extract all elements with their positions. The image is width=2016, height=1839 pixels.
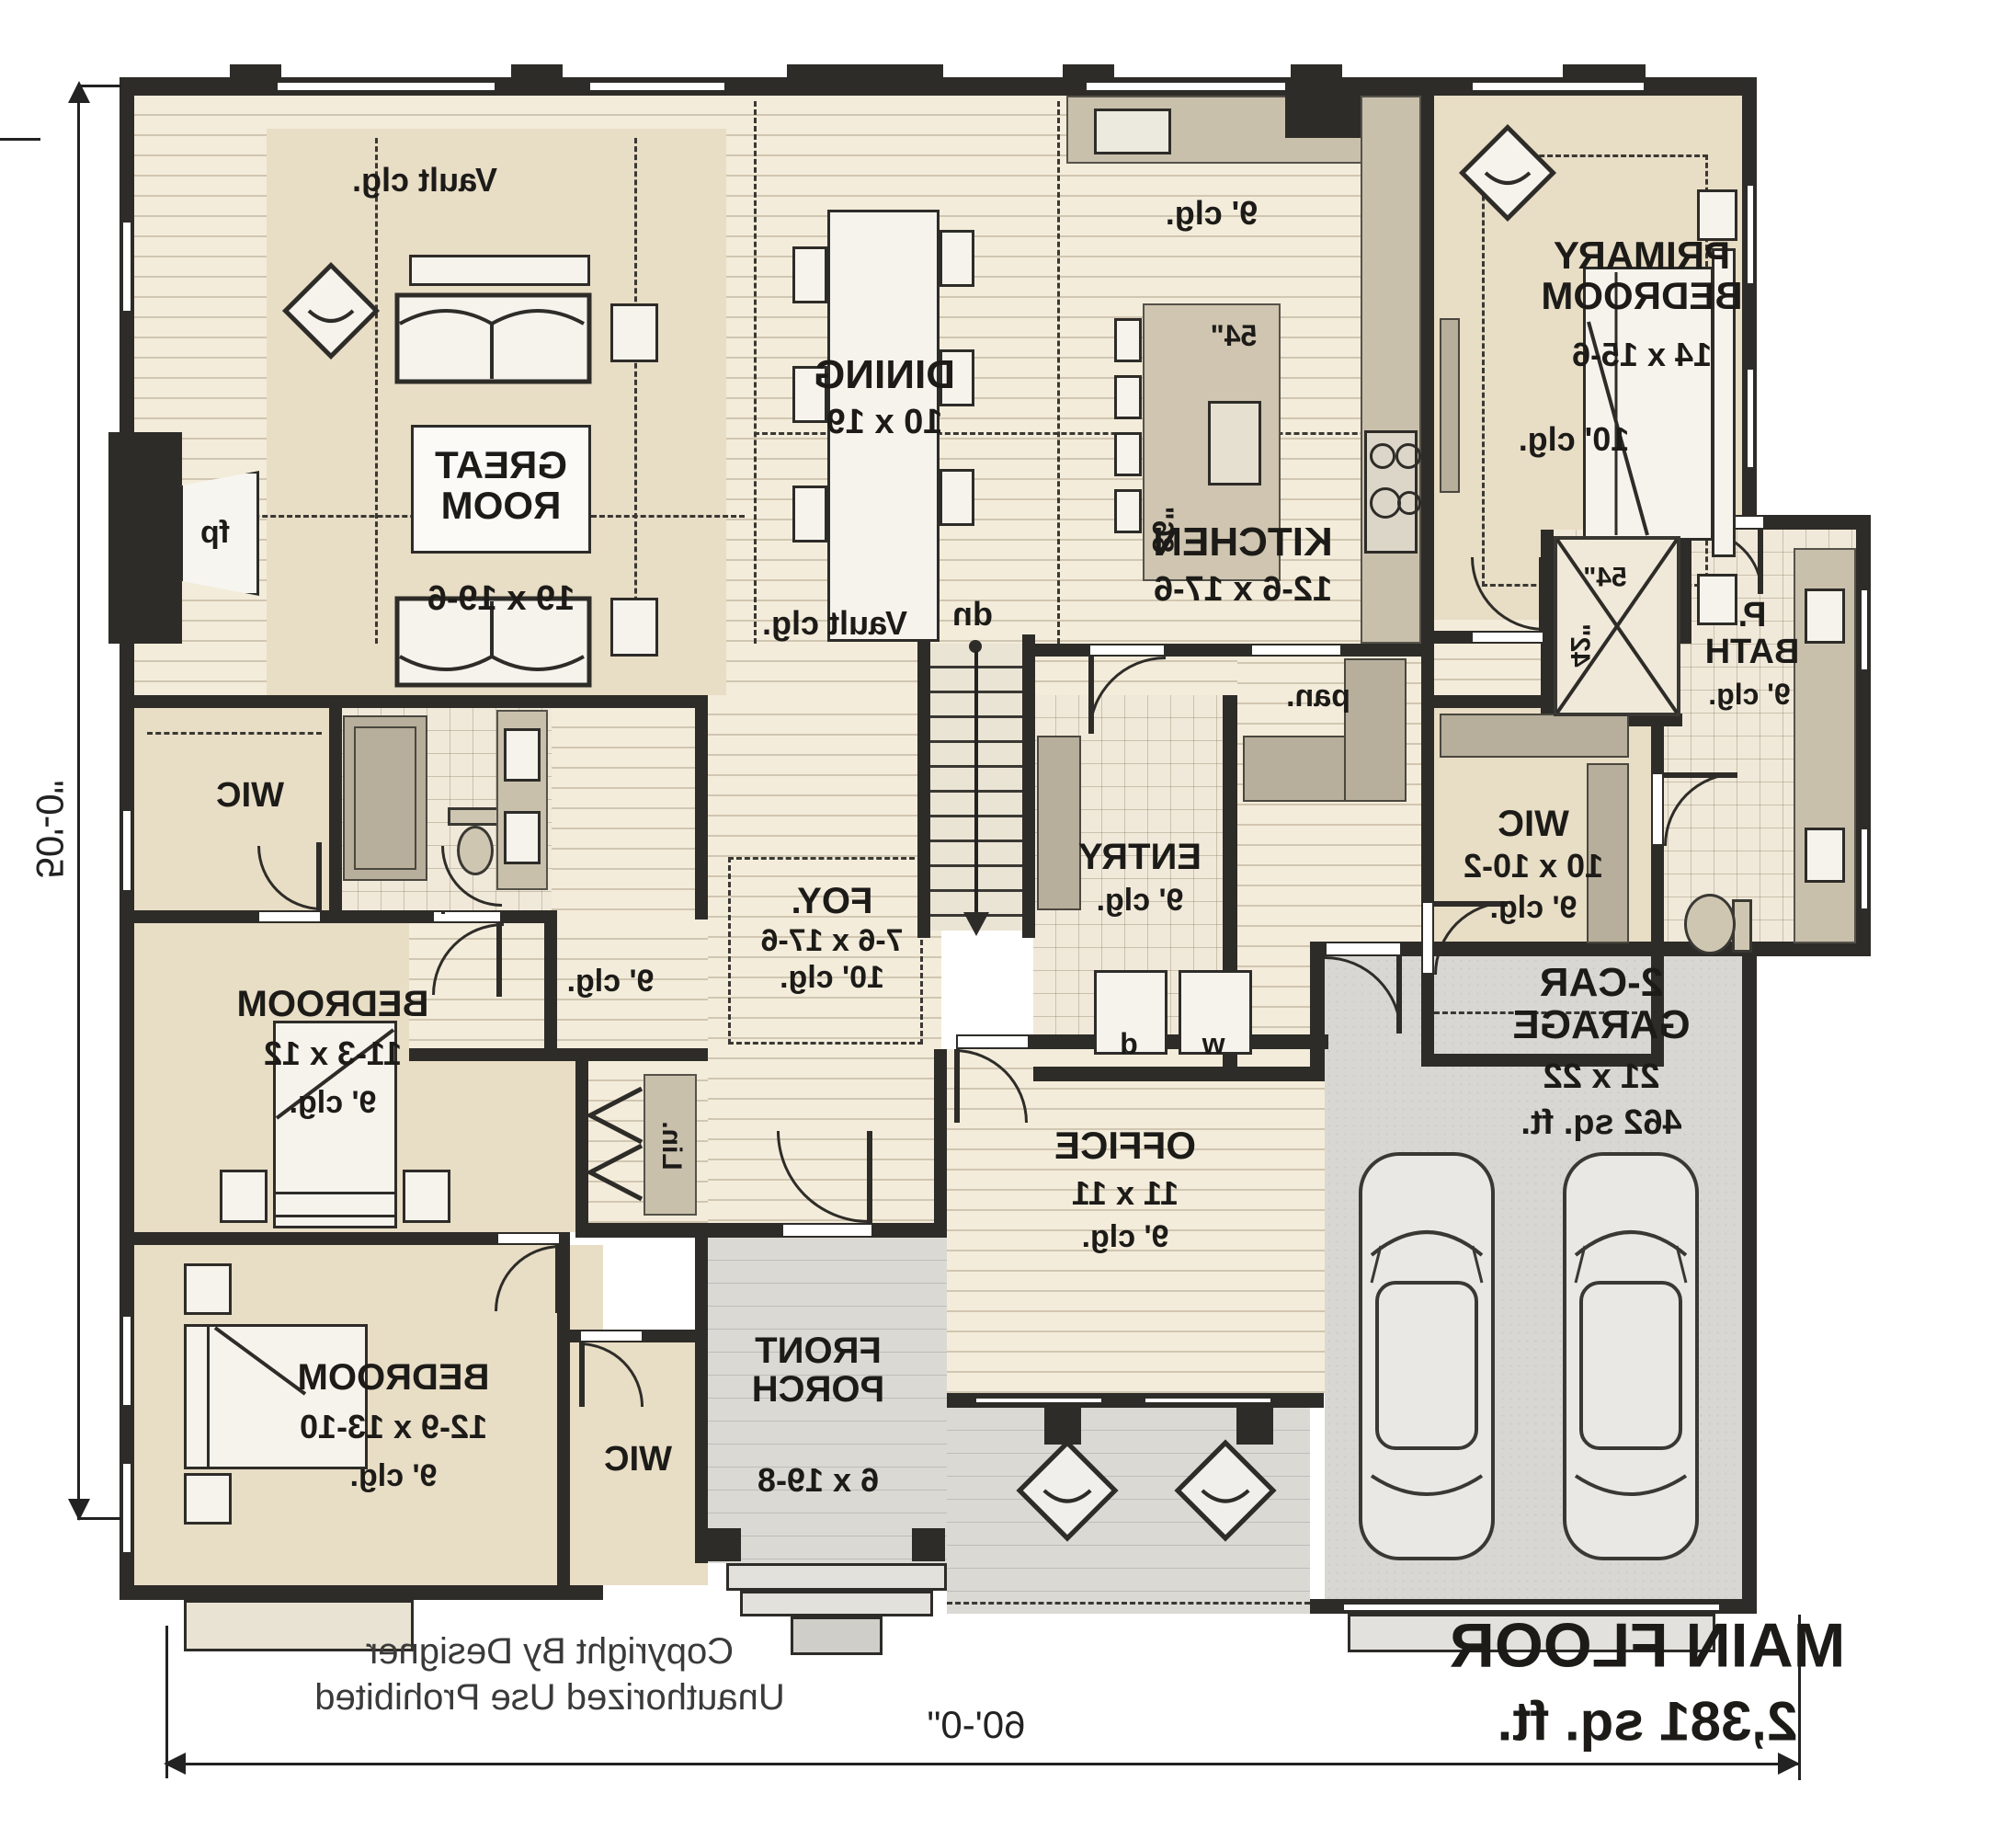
linen-label: Lin. [656,1121,686,1170]
great-room-name-label: GREAT ROOM [418,445,584,526]
wall-kitchen-south-a [1033,644,1088,657]
dim-height-label: 50'-0" [29,781,70,879]
ceiling-break-line [1057,101,1060,644]
wall-wic2-left-b [1421,975,1434,1067]
dim-line-vertical [77,86,80,1519]
foyer-dims-label: 7-6 x 17-6 [761,925,904,958]
dim-ext [77,85,121,87]
porch-step [740,1591,933,1616]
bedroom2-name-label: BEDROOM [237,985,429,1023]
closet-shelf [147,732,322,735]
front-door-opening [781,1223,873,1238]
wall-primary-bath-vert [1679,530,1691,644]
nightstand [220,1170,268,1223]
plan-title: MAIN FLOOR [1450,1613,1846,1678]
window-trim [511,64,563,79]
kitchen-ceiling-label: 9' clg. [1166,196,1259,231]
wall-bedroom3-bottom [120,1585,603,1600]
dining-chair [792,246,827,303]
entry-name-label: ENTRY [1078,838,1202,876]
window-trim [1291,64,1342,79]
copyright-line-1: Copyright By Designer [366,1632,734,1671]
primary-bedroom-ceiling-label: 10' clg. [1519,422,1630,457]
wall-entry-bottom [1033,1067,1310,1081]
dim-line-horizontal [168,1763,1800,1765]
primary-bedroom-name-label: PRIMARY BEDROOM [1527,235,1757,316]
bed-headboard [273,1192,397,1217]
side-table [610,303,658,362]
bedroom3-dims-label: 12-9 x 13-10 [300,1410,487,1445]
office-dims-label: 11 x 11 [1072,1176,1179,1211]
wall-kitchen-south-c [1342,644,1421,657]
primary-bath-ceiling-label: 9' clg. [1708,680,1790,711]
window [1860,588,1869,671]
dining-chair [940,469,974,526]
dresser [1440,318,1460,493]
dining-name-label: DINING [814,354,955,396]
door-opening [257,910,322,923]
window [1746,368,1755,469]
island-width-label: 54" [1211,321,1258,352]
bed-fold-line [210,1324,311,1469]
primary-bath-name-label: P. BATH [1692,598,1812,671]
vault-line [634,138,637,644]
door-opening [1088,644,1166,657]
door-opening [956,1034,1030,1049]
wall-stairs-left [917,634,930,938]
dim-ext [77,1517,121,1520]
fireplace-chase [108,432,182,644]
primary-wic-dims-label: 10 x 10-2 [1464,849,1603,884]
garage-name-label: 2-CAR GARAGE [1477,962,1726,1046]
wall-office-left [934,1049,947,1238]
pantry-shelf [1344,658,1407,802]
window [276,81,496,92]
primary-wic-name-label: WIC [1498,805,1569,843]
nightstand [184,1473,232,1525]
roof-overhang [947,1602,1310,1605]
door-opening [1471,631,1544,644]
side-table [610,598,658,657]
entry-ceiling-label: 9' clg. [1096,885,1183,918]
wall-primary-bottom-a [1434,631,1471,644]
shower-depth-label: 42" [1565,623,1594,668]
kitchen-name-label: KITCHEN [1153,521,1333,564]
burner [1397,491,1421,515]
island-sink [1208,401,1261,485]
kitchen-counter-right [1361,96,1421,644]
vanity-sink [504,811,541,864]
bedroom3-name-label: BEDROOM [298,1358,490,1397]
dining-dims-label: 10 x 19 [826,405,943,441]
armchair-icon [1451,116,1565,230]
great-room-ceiling-label: Vault clg. [352,163,497,198]
wall-greatroom-bottom [134,695,708,708]
nightstand [403,1170,450,1223]
bedroom3-wic-label: WIC [604,1442,672,1479]
dryer-label: d [1120,1029,1138,1060]
door-leaf [1539,557,1544,631]
wall-wic2-left-a [1421,644,1434,901]
burner [1370,443,1395,469]
dim-width-label: 60'-0" [928,1705,1026,1745]
stairs-dn-label: dn [952,597,993,632]
wall-kitchen-south-b [1166,644,1250,657]
door-opening [1651,772,1664,846]
kitchen-sink [1094,109,1171,154]
island-stool [1114,432,1142,476]
kitchen-dims-label: 12-6 x 17-6 [1154,572,1332,609]
copyright-line-2: Unauthorized Use Prohibited [314,1678,784,1717]
wall-kitchen-suite [1421,77,1434,644]
primary-bedroom-dims-label: 14 x 15-6 [1572,337,1712,372]
burner [1395,443,1421,469]
front-porch-name-label: FRONT PORCH [722,1331,915,1409]
shower-width-label: 54" [1583,563,1627,592]
car-icon [1557,1145,1704,1568]
vault-line [375,138,378,644]
wall-porch-left [695,1223,708,1563]
primary-wic-ceiling-label: 9' clg. [1489,892,1577,925]
entry-bench [1037,736,1081,910]
door-leaf [1088,657,1094,734]
wall-garage-right [1742,956,1757,1614]
foyer-name-label: FOY. [792,882,873,920]
door-leaf [496,923,502,997]
window [121,1315,132,1407]
front-porch-dims-label: 6 x 19-8 [757,1463,879,1498]
door-leaf [1758,530,1763,594]
bifold-door-icon [583,1085,647,1205]
bedroom3-ceiling-label: 9' clg. [349,1460,437,1493]
toilet-bowl [457,826,494,875]
window-trim [230,64,281,79]
wall-stairs-right [1022,634,1035,938]
console-table [409,255,590,286]
wall-linen-bottom [575,1223,695,1238]
patio-chair-icon [1166,1431,1285,1550]
dim-ext [0,138,40,141]
window [1471,81,1646,92]
wic-shelf [1440,714,1629,758]
wall-hall-bottom [409,1048,708,1061]
washer-label: w [1202,1029,1225,1060]
nightstand [184,1263,232,1315]
porch-step [791,1616,883,1655]
foyer-vault-label: Vault clg. [762,606,907,641]
burner [1370,487,1401,519]
door-opening [579,1330,644,1342]
door-opening [441,910,445,914]
great-room-dims-label: 19 x 19-6 [427,581,575,618]
car-icon [1353,1145,1500,1568]
door-leaf [579,1342,585,1407]
bedroom2-dims-label: 11-3 x 12 [264,1036,402,1071]
hall-ceiling-label: 9' clg. [566,965,654,999]
wall-garage-left [1310,956,1325,1081]
door-opening [496,1232,561,1245]
door-leaf [867,1131,872,1225]
stair-arrow-line [974,651,978,912]
garage-area-label: 462 sq. ft. [1521,1105,1681,1142]
floor-plan-canvas: Vault clg. GREAT ROOM 19 x 19-6 fp DININ… [0,0,2016,1839]
toilet-bowl [1684,894,1736,954]
porch-step [726,1563,947,1591]
foyer-ceiling-label: 10' clg. [780,962,884,995]
armchair-icon [274,254,388,368]
door-leaf [1664,772,1737,778]
window [1144,1397,1272,1404]
office-ceiling-label: 9' clg. [1081,1221,1168,1254]
door-opening [1421,901,1434,975]
window-trim [1063,64,1114,79]
bedroom2-ceiling-label: 9' clg. [289,1087,376,1120]
window [974,1397,1103,1404]
wall-hall-vert [544,910,557,1048]
door-leaf [1396,956,1402,1034]
office-name-label: OFFICE [1054,1125,1196,1166]
dining-chair [940,230,974,287]
bedroom2-wic-label: WIC [216,778,284,815]
door-leaf [954,1049,960,1123]
toilet-tank [448,807,501,826]
window [588,81,726,92]
window [121,221,132,313]
window [121,1462,132,1554]
island-stool [1114,375,1142,419]
dim-arrow-right [1778,1753,1800,1775]
garage-dims-label: 21 x 22 [1543,1059,1660,1096]
porch-post [912,1528,945,1561]
window-trim [787,64,943,79]
refrigerator [1285,85,1362,138]
window-trim [1563,64,1646,79]
patio-chair-icon [1008,1431,1127,1550]
vanity-sink [1805,828,1845,883]
wall-foyer-west [695,695,708,919]
stair-arrow-down [963,912,989,936]
door-opening [1325,942,1402,956]
pantry-opening [1250,644,1342,657]
porch-post [708,1528,741,1561]
sofa-icon [394,292,592,384]
door-leaf [555,1245,561,1313]
dim-ext [165,1626,168,1778]
pantry-label: pan. [1286,680,1350,714]
bed-headboard [184,1324,210,1469]
window [1085,81,1287,92]
ceiling-break-line [754,101,757,644]
door-leaf [316,842,322,910]
window [121,809,132,892]
window [1860,828,1869,910]
dining-chair [792,485,827,543]
bathtub-inner [354,726,416,870]
fireplace-label: fp [200,517,230,550]
island-stool [1114,318,1142,362]
vanity-sink [504,728,541,782]
wall-wic2-bath-divider [329,708,342,919]
plan-area: 2,381 sq. ft. [1498,1693,1798,1751]
island-stool [1114,489,1142,533]
